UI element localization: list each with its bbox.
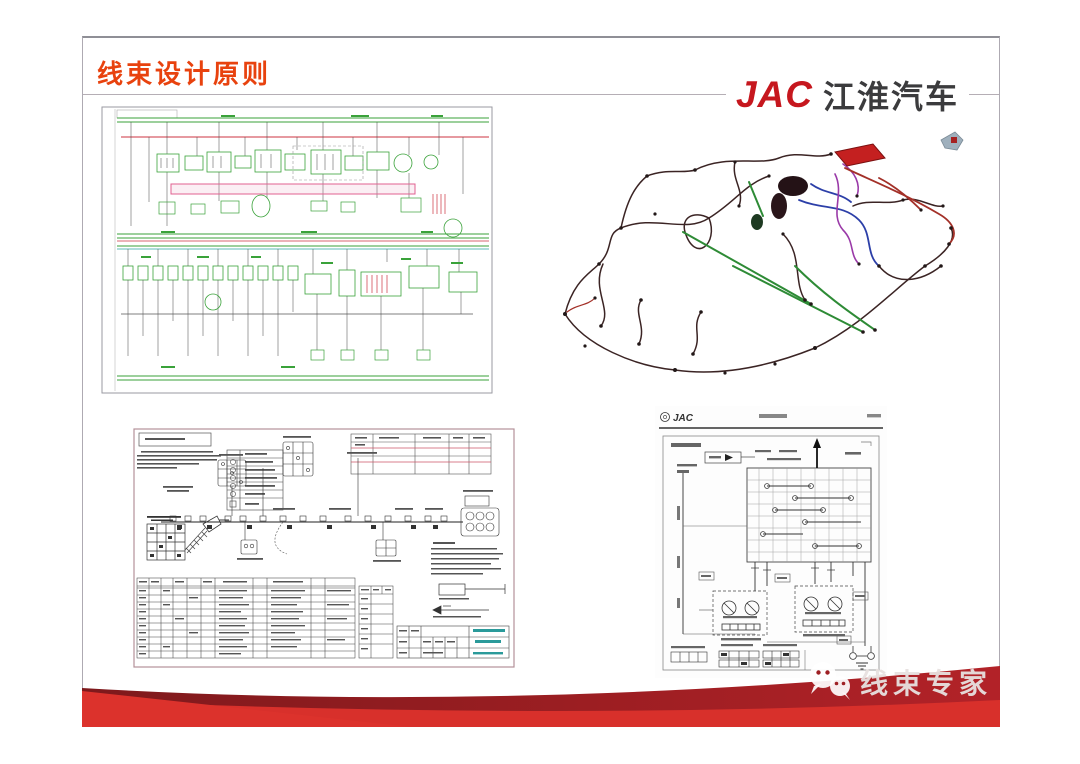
watermark-text: 线束专家 xyxy=(860,662,992,702)
screenshot-stage: 线束设计原则 JAC 江淮汽车 xyxy=(0,0,1080,764)
jac-logo-text: JAC xyxy=(736,74,813,116)
circuit-schematic-svg xyxy=(101,106,493,394)
circuit-schematic-image xyxy=(101,106,493,394)
brand-logo: JAC 江淮汽车 xyxy=(726,72,969,118)
presentation-slide: 线束设计原则 JAC 江淮汽车 xyxy=(82,36,1000,727)
diagram-header-brand: JAC xyxy=(673,413,694,424)
harness-drawing-image xyxy=(133,428,515,668)
jac-logo-chinese: 江淮汽车 xyxy=(823,72,959,118)
harness-drawing-svg xyxy=(133,428,515,668)
harness-3d-svg xyxy=(543,114,971,396)
wiring-diagram-image: JAC xyxy=(655,406,887,678)
view-cube-icon xyxy=(941,132,963,150)
harness-3d-image xyxy=(543,114,971,396)
wiring-diagram-svg: JAC xyxy=(655,406,887,678)
page-title: 线束设计原则 xyxy=(97,54,271,91)
watermark: 线束专家 xyxy=(806,661,992,703)
wechat-icon xyxy=(806,661,852,703)
